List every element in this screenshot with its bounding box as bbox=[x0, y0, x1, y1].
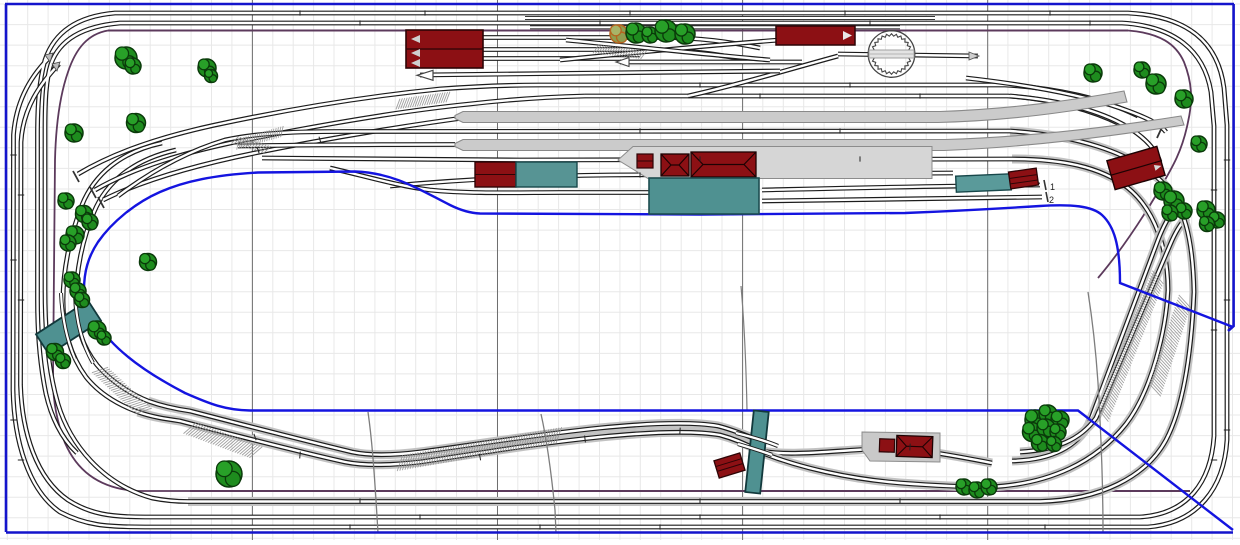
svg-text:1: 1 bbox=[1050, 182, 1055, 192]
svg-text:2: 2 bbox=[1049, 195, 1054, 205]
